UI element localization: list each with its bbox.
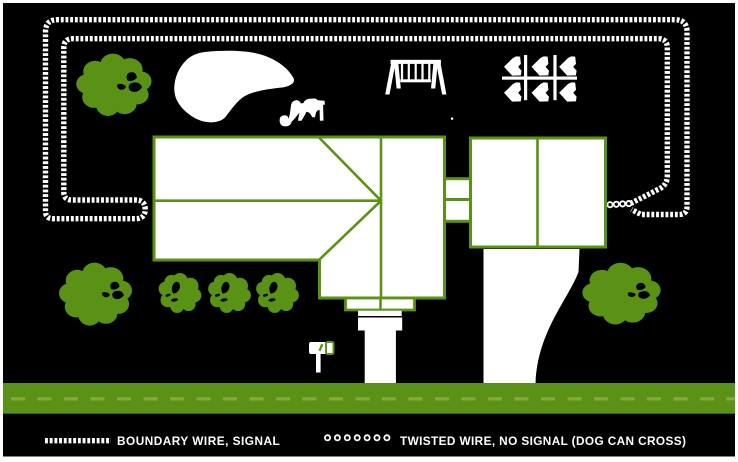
svg-text:TWISTED WIRE, NO SIGNAL (DOG C: TWISTED WIRE, NO SIGNAL (DOG CAN CROSS) bbox=[400, 434, 686, 448]
svg-text:BOUNDARY WIRE, SIGNAL: BOUNDARY WIRE, SIGNAL bbox=[117, 434, 280, 448]
